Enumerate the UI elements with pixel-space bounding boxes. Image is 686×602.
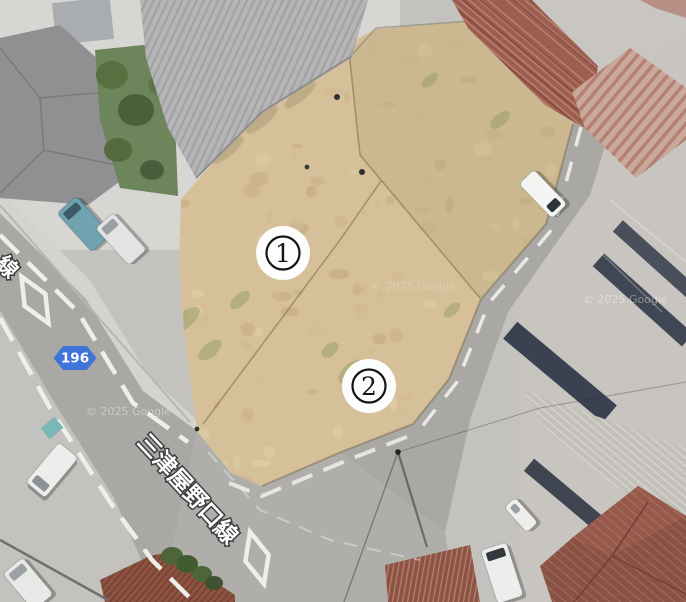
figure-dot <box>305 165 310 170</box>
marker-number: 1 <box>275 239 291 268</box>
utility-pole <box>395 449 401 455</box>
route-196-badge: 196 <box>56 348 94 368</box>
marker-number: 2 <box>361 372 377 401</box>
utility-pole <box>195 427 200 432</box>
satellite-map[interactable]: 三津屋野口線 線 196 © 2025 Google © 2025 Google… <box>0 0 686 602</box>
parcel-marker-1[interactable]: 1 <box>256 226 310 280</box>
google-watermark: © 2025 Google <box>371 280 456 293</box>
google-watermark: © 2025 Google <box>86 405 171 418</box>
google-watermark: © 2025 Google <box>583 293 668 306</box>
parcel-marker-2[interactable]: 2 <box>342 359 396 413</box>
figure-dot <box>334 94 340 100</box>
route-badge-number: 196 <box>61 351 89 367</box>
figure-dot <box>359 169 365 175</box>
map-viewport[interactable]: 三津屋野口線 線 196 © 2025 Google © 2025 Google… <box>0 0 686 602</box>
